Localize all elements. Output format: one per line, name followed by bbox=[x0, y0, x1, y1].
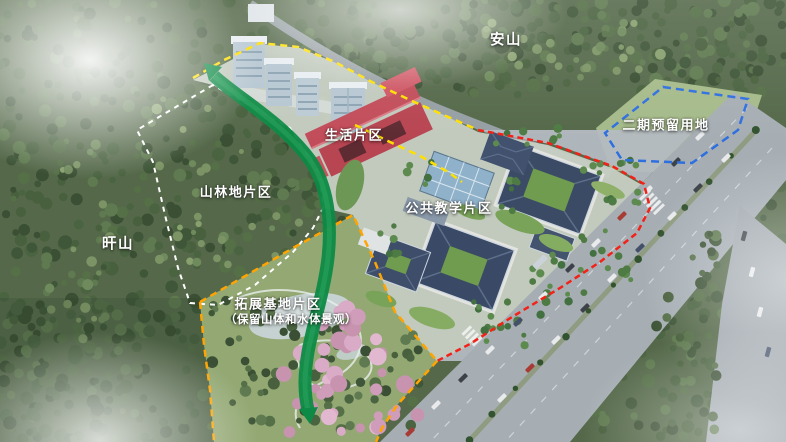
label-public-teaching: 公共教学片区 bbox=[405, 198, 492, 217]
label-an-shan: 安山 bbox=[490, 29, 522, 50]
campus-master-plan: 安山 二期预留用地 生活片区 山林地片区 旰山 公共教学片区 拓展基地片区 （保… bbox=[0, 0, 786, 442]
label-living-area: 生活片区 bbox=[325, 125, 383, 144]
label-phase2-reserved: 二期预留用地 bbox=[622, 115, 709, 134]
label-mountain-forest: 山林地片区 bbox=[200, 182, 273, 201]
tower bbox=[294, 72, 321, 116]
label-gan-shan: 旰山 bbox=[102, 233, 134, 254]
label-expansion-base: 拓展基地片区 bbox=[234, 294, 321, 313]
tower bbox=[264, 58, 294, 106]
site-rendering-canvas bbox=[0, 0, 786, 442]
label-expansion-note: （保留山体和水体景观） bbox=[225, 311, 357, 327]
